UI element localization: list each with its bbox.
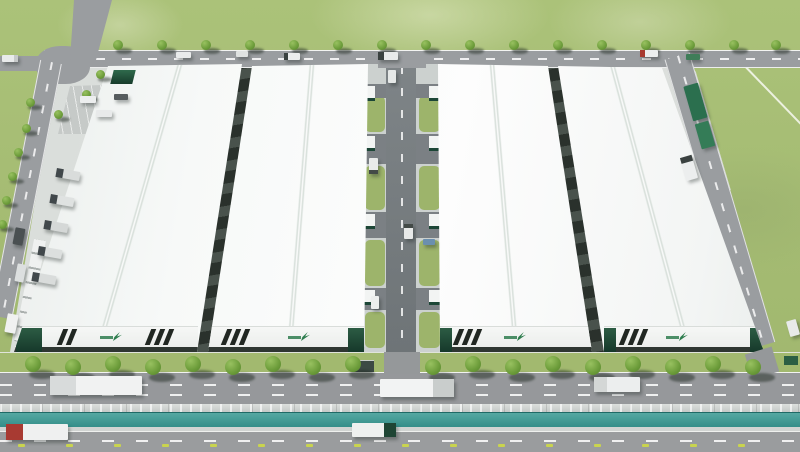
- tree: [425, 359, 441, 375]
- tree-canopy: [289, 40, 299, 50]
- curb-marker: [690, 444, 697, 447]
- curb-marker: [738, 444, 745, 447]
- tree: [157, 40, 167, 50]
- truck-cab: [378, 52, 384, 60]
- tree-canopy: [265, 356, 281, 372]
- curb-marker: [594, 444, 601, 447]
- tree-canopy: [333, 40, 343, 50]
- truck-cab: [31, 272, 39, 282]
- tree-canopy: [65, 359, 81, 375]
- facade-end-block: [604, 328, 616, 352]
- logo-text-bar: [100, 336, 113, 339]
- tree-canopy: [0, 220, 7, 229]
- tree-canopy: [225, 359, 241, 375]
- curb-marker: [354, 444, 361, 447]
- tree: [509, 40, 519, 50]
- corridor-grass: [419, 166, 440, 210]
- curb-marker: [114, 444, 121, 447]
- tree: [2, 196, 11, 205]
- tree-canopy: [54, 110, 63, 119]
- truck-cab: [404, 224, 413, 228]
- tree: [65, 359, 81, 375]
- truck: [388, 70, 396, 83]
- truck-cab: [37, 246, 45, 256]
- logo-bird-icon: [301, 332, 310, 341]
- tree: [729, 40, 739, 50]
- front-road: [0, 431, 800, 452]
- tree: [0, 220, 7, 229]
- logo-text-bar: [666, 336, 679, 339]
- corridor-grass: [365, 312, 385, 348]
- truck-cab: [369, 170, 378, 174]
- tree: [22, 124, 31, 133]
- tree-canopy: [705, 356, 721, 372]
- entrance-canopy: [110, 70, 135, 84]
- truck: [2, 55, 18, 62]
- tree: [333, 40, 343, 50]
- tree: [685, 40, 695, 50]
- truck: [423, 239, 435, 245]
- facade-end-block: [348, 328, 364, 352]
- tree: [585, 359, 601, 375]
- truck: [378, 52, 398, 60]
- tree-canopy: [597, 40, 607, 50]
- corridor-grass: [419, 240, 440, 286]
- tree-canopy: [113, 40, 123, 50]
- truck: [786, 319, 800, 337]
- truck-cab: [594, 377, 607, 392]
- corridor-grass: [365, 96, 385, 132]
- roof-ridge: [286, 64, 315, 354]
- corridor-grass: [419, 96, 440, 132]
- tree-canopy: [105, 356, 121, 372]
- truck-cab: [284, 53, 288, 60]
- truck: [96, 110, 112, 117]
- tree: [96, 70, 105, 79]
- roof-ridge: [489, 64, 519, 353]
- tree-canopy: [771, 40, 781, 50]
- truck-cab: [433, 379, 454, 397]
- tree-canopy: [377, 40, 387, 50]
- truck-cab: [384, 423, 396, 437]
- logo-text-bar: [504, 336, 517, 339]
- tree-canopy: [157, 40, 167, 50]
- east-guard-hut: [784, 356, 798, 365]
- tree: [641, 40, 651, 50]
- truck-cab: [640, 50, 645, 57]
- truck: [640, 50, 658, 57]
- logo-bird-icon: [679, 332, 688, 341]
- tree: [377, 40, 387, 50]
- truck-cab: [49, 194, 57, 204]
- corridor-road: [386, 66, 416, 352]
- tree: [305, 359, 321, 375]
- tree: [185, 356, 201, 372]
- logo-text-bar: [288, 336, 301, 339]
- tree-canopy: [245, 40, 255, 50]
- tree-canopy: [185, 356, 201, 372]
- tree: [465, 356, 481, 372]
- tree: [201, 40, 211, 50]
- tree-canopy: [509, 40, 519, 50]
- company-logo: [666, 331, 690, 343]
- tree: [421, 40, 431, 50]
- truck: [404, 224, 413, 239]
- tree: [553, 40, 563, 50]
- truck-cab: [6, 424, 23, 440]
- tree-canopy: [345, 356, 361, 372]
- facade-end-block: [440, 328, 452, 352]
- truck: [50, 376, 142, 395]
- tree-canopy: [96, 70, 105, 79]
- logo-bird-icon: [517, 332, 526, 341]
- main-gate-road: [384, 352, 420, 374]
- curb-marker: [402, 444, 409, 447]
- curb-marker: [258, 444, 265, 447]
- company-logo: [100, 331, 124, 343]
- tree: [113, 40, 123, 50]
- tree-canopy: [26, 98, 35, 107]
- corridor-grass: [419, 312, 440, 348]
- curb-marker: [210, 444, 217, 447]
- tree-canopy: [545, 356, 561, 372]
- loading-dock-platform: [429, 290, 441, 305]
- roof-ridge: [97, 63, 183, 345]
- tree-canopy: [553, 40, 563, 50]
- tree-canopy: [425, 359, 441, 375]
- truck: [284, 53, 300, 60]
- curb-marker: [498, 444, 505, 447]
- truck: [6, 424, 68, 440]
- corridor-grass: [365, 240, 385, 286]
- tree-canopy: [201, 40, 211, 50]
- truck: [236, 51, 248, 57]
- tree-canopy: [22, 124, 31, 133]
- tree: [597, 40, 607, 50]
- tree: [225, 359, 241, 375]
- tree-canopy: [465, 40, 475, 50]
- company-logo: [504, 331, 528, 343]
- truck: [114, 94, 128, 100]
- truck: [176, 52, 191, 58]
- company-logo: [288, 331, 312, 343]
- truck: [371, 296, 379, 309]
- tree-canopy: [305, 359, 321, 375]
- tree: [25, 356, 41, 372]
- tree: [245, 40, 255, 50]
- tree: [625, 356, 641, 372]
- curb-marker: [450, 444, 457, 447]
- tree: [545, 356, 561, 372]
- curb-marker: [642, 444, 649, 447]
- tree-canopy: [585, 359, 601, 375]
- truck: [369, 158, 378, 174]
- logo-bird-icon: [113, 332, 122, 341]
- truck-cab: [43, 220, 51, 230]
- tree: [105, 356, 121, 372]
- tree-canopy: [14, 148, 23, 157]
- truck: [352, 423, 396, 437]
- tree-canopy: [729, 40, 739, 50]
- tree: [665, 359, 681, 375]
- truck: [80, 96, 96, 103]
- tree-canopy: [685, 40, 695, 50]
- tree: [8, 172, 17, 181]
- tree-canopy: [505, 359, 521, 375]
- curb-marker: [306, 444, 313, 447]
- curb-marker: [162, 444, 169, 447]
- tree-canopy: [665, 359, 681, 375]
- truck-cab: [55, 168, 63, 178]
- tree: [265, 356, 281, 372]
- tree: [345, 356, 361, 372]
- tree: [505, 359, 521, 375]
- tree-canopy: [8, 172, 17, 181]
- tree: [465, 40, 475, 50]
- truck-cab: [50, 376, 76, 395]
- tree: [289, 40, 299, 50]
- curb-marker: [66, 444, 73, 447]
- tree-canopy: [745, 359, 761, 375]
- truck-cab: [14, 55, 18, 62]
- curb-marker: [546, 444, 553, 447]
- tree: [771, 40, 781, 50]
- tree-canopy: [25, 356, 41, 372]
- tree-canopy: [625, 356, 641, 372]
- tree: [54, 110, 63, 119]
- tree-canopy: [641, 40, 651, 50]
- boundary-fence-line: [737, 58, 800, 126]
- tree-canopy: [2, 196, 11, 205]
- curb-marker: [18, 444, 25, 447]
- truck: [380, 379, 454, 397]
- tree-canopy: [421, 40, 431, 50]
- tree: [145, 359, 161, 375]
- tree: [705, 356, 721, 372]
- tree-canopy: [465, 356, 481, 372]
- tree: [14, 148, 23, 157]
- tree: [26, 98, 35, 107]
- scene: [0, 0, 800, 452]
- truck: [686, 54, 700, 60]
- tree-canopy: [145, 359, 161, 375]
- truck: [594, 377, 640, 392]
- tree: [745, 359, 761, 375]
